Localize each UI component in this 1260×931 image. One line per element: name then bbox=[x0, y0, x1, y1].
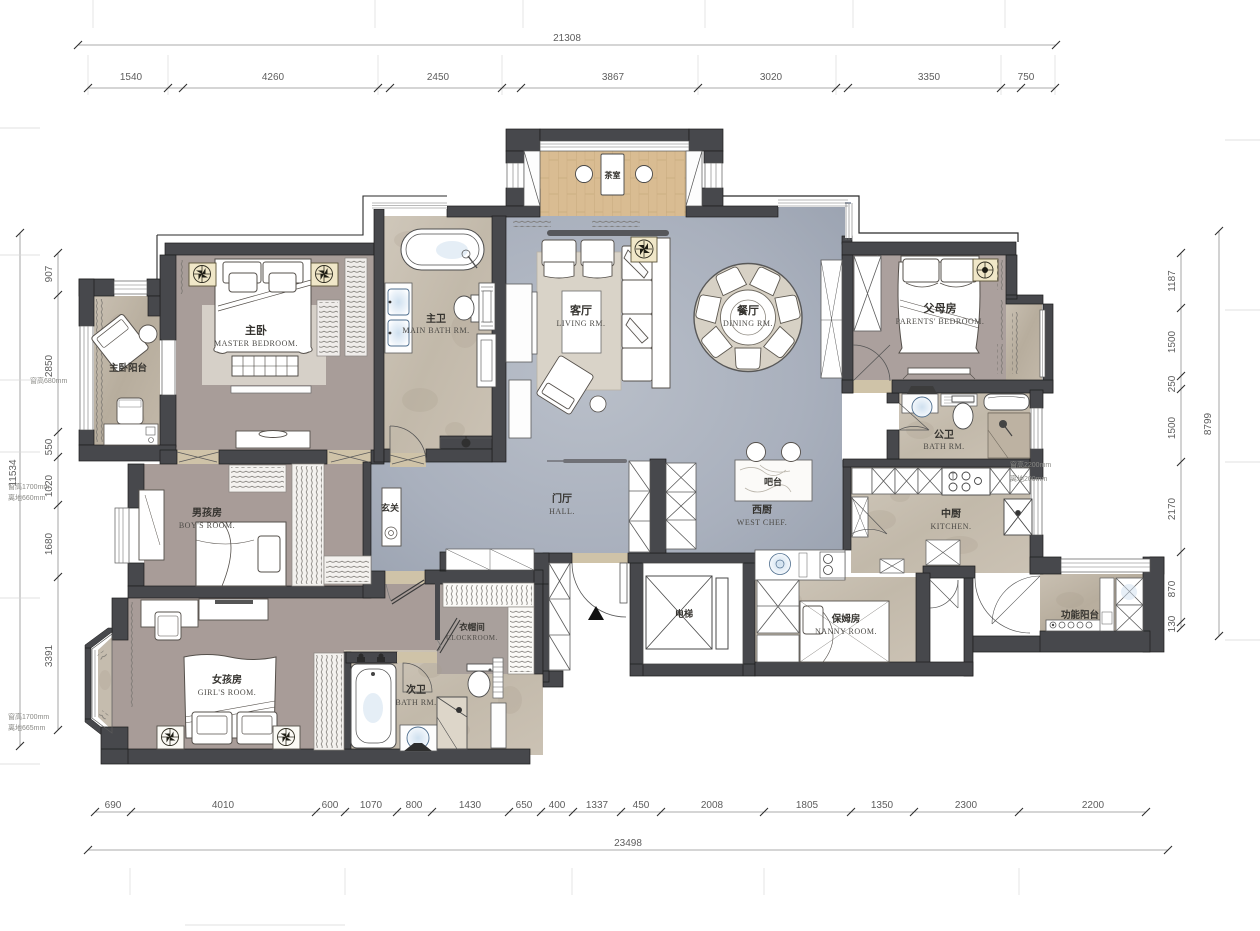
svg-text:450: 450 bbox=[633, 800, 650, 811]
svg-text:公卫: 公卫 bbox=[934, 429, 954, 441]
svg-text:GIRL'S ROOM.: GIRL'S ROOM. bbox=[198, 688, 257, 697]
svg-text:250: 250 bbox=[1167, 375, 1178, 392]
svg-text:8799: 8799 bbox=[1203, 412, 1214, 435]
svg-text:690: 690 bbox=[105, 800, 122, 811]
svg-text:离地200mm: 离地200mm bbox=[1010, 474, 1048, 483]
svg-text:1070: 1070 bbox=[360, 800, 383, 811]
svg-text:4010: 4010 bbox=[212, 800, 235, 811]
svg-text:1500: 1500 bbox=[1167, 330, 1178, 353]
svg-text:主卧: 主卧 bbox=[245, 323, 267, 337]
svg-text:750: 750 bbox=[1018, 72, 1035, 83]
svg-text:电梯: 电梯 bbox=[675, 608, 693, 619]
svg-text:11534: 11534 bbox=[8, 459, 19, 487]
svg-text:1020: 1020 bbox=[44, 474, 55, 497]
svg-text:2300: 2300 bbox=[955, 800, 978, 811]
svg-text:907: 907 bbox=[44, 265, 55, 282]
svg-text:2200: 2200 bbox=[1082, 800, 1105, 811]
svg-text:玄关: 玄关 bbox=[381, 502, 399, 513]
svg-text:23498: 23498 bbox=[614, 838, 642, 849]
svg-text:WEST CHEF.: WEST CHEF. bbox=[737, 518, 787, 527]
svg-text:西厨: 西厨 bbox=[752, 504, 772, 516]
svg-text:1187: 1187 bbox=[1167, 270, 1178, 292]
svg-text:衣帽间: 衣帽间 bbox=[459, 622, 485, 632]
svg-text:离地665mm: 离地665mm bbox=[8, 723, 46, 732]
svg-text:LIVING RM.: LIVING RM. bbox=[557, 319, 606, 328]
svg-text:1540: 1540 bbox=[120, 72, 143, 83]
svg-text:功能阳台: 功能阳台 bbox=[1061, 609, 1100, 621]
svg-text:离地660mm: 离地660mm bbox=[8, 493, 46, 502]
svg-text:PARENTS' BEDROOM.: PARENTS' BEDROOM. bbox=[896, 317, 985, 326]
svg-text:次卫: 次卫 bbox=[406, 683, 426, 696]
svg-text:1430: 1430 bbox=[459, 800, 482, 811]
svg-text:MASTER BEDROOM.: MASTER BEDROOM. bbox=[214, 339, 298, 348]
svg-text:客厅: 客厅 bbox=[569, 303, 592, 317]
svg-text:MAIN BATH RM.: MAIN BATH RM. bbox=[402, 326, 469, 335]
svg-text:BOY'S ROOM.: BOY'S ROOM. bbox=[179, 521, 235, 530]
svg-text:1337: 1337 bbox=[586, 800, 609, 811]
svg-text:2008: 2008 bbox=[701, 800, 724, 811]
svg-text:KITCHEN.: KITCHEN. bbox=[930, 522, 971, 531]
svg-text:1680: 1680 bbox=[44, 532, 55, 555]
svg-text:NANNY ROOM.: NANNY ROOM. bbox=[815, 627, 877, 636]
svg-text:800: 800 bbox=[406, 800, 423, 811]
svg-text:BATH RM.: BATH RM. bbox=[923, 442, 964, 451]
svg-text:2850: 2850 bbox=[44, 354, 55, 377]
svg-text:3391: 3391 bbox=[44, 644, 55, 667]
svg-text:窗高2200mm: 窗高2200mm bbox=[1010, 460, 1051, 469]
svg-text:门厅: 门厅 bbox=[552, 492, 572, 505]
svg-text:650: 650 bbox=[516, 800, 533, 811]
svg-text:CLOCKROOM.: CLOCKROOM. bbox=[446, 634, 497, 642]
svg-text:550: 550 bbox=[44, 438, 55, 455]
svg-text:男孩房: 男孩房 bbox=[192, 506, 222, 519]
svg-text:中厨: 中厨 bbox=[941, 507, 961, 520]
svg-text:2170: 2170 bbox=[1167, 497, 1178, 520]
svg-text:主卫: 主卫 bbox=[426, 312, 446, 325]
svg-text:400: 400 bbox=[549, 800, 566, 811]
svg-text:130: 130 bbox=[1167, 615, 1178, 632]
svg-text:3020: 3020 bbox=[760, 72, 783, 83]
svg-text:BATH RM.: BATH RM. bbox=[395, 698, 436, 707]
svg-text:1500: 1500 bbox=[1167, 416, 1178, 439]
svg-text:21308: 21308 bbox=[553, 33, 581, 44]
svg-text:吧台: 吧台 bbox=[764, 476, 782, 487]
svg-text:女孩房: 女孩房 bbox=[212, 673, 242, 686]
svg-text:1805: 1805 bbox=[796, 800, 819, 811]
svg-text:窗高1700mm: 窗高1700mm bbox=[8, 712, 49, 721]
svg-text:3350: 3350 bbox=[918, 72, 941, 83]
svg-text:保姆房: 保姆房 bbox=[831, 613, 861, 625]
svg-text:1350: 1350 bbox=[871, 800, 894, 811]
svg-text:父母房: 父母房 bbox=[923, 301, 957, 315]
svg-text:DINING RM.: DINING RM. bbox=[723, 319, 773, 328]
svg-text:HALL.: HALL. bbox=[549, 507, 575, 516]
svg-text:870: 870 bbox=[1167, 580, 1178, 597]
svg-text:餐厅: 餐厅 bbox=[736, 303, 759, 317]
svg-text:600: 600 bbox=[322, 800, 339, 811]
svg-text:2450: 2450 bbox=[427, 72, 450, 83]
svg-text:主卧阳台: 主卧阳台 bbox=[109, 362, 148, 374]
svg-text:4260: 4260 bbox=[262, 72, 285, 83]
svg-text:茶室: 茶室 bbox=[604, 170, 621, 180]
svg-text:3867: 3867 bbox=[602, 72, 625, 83]
